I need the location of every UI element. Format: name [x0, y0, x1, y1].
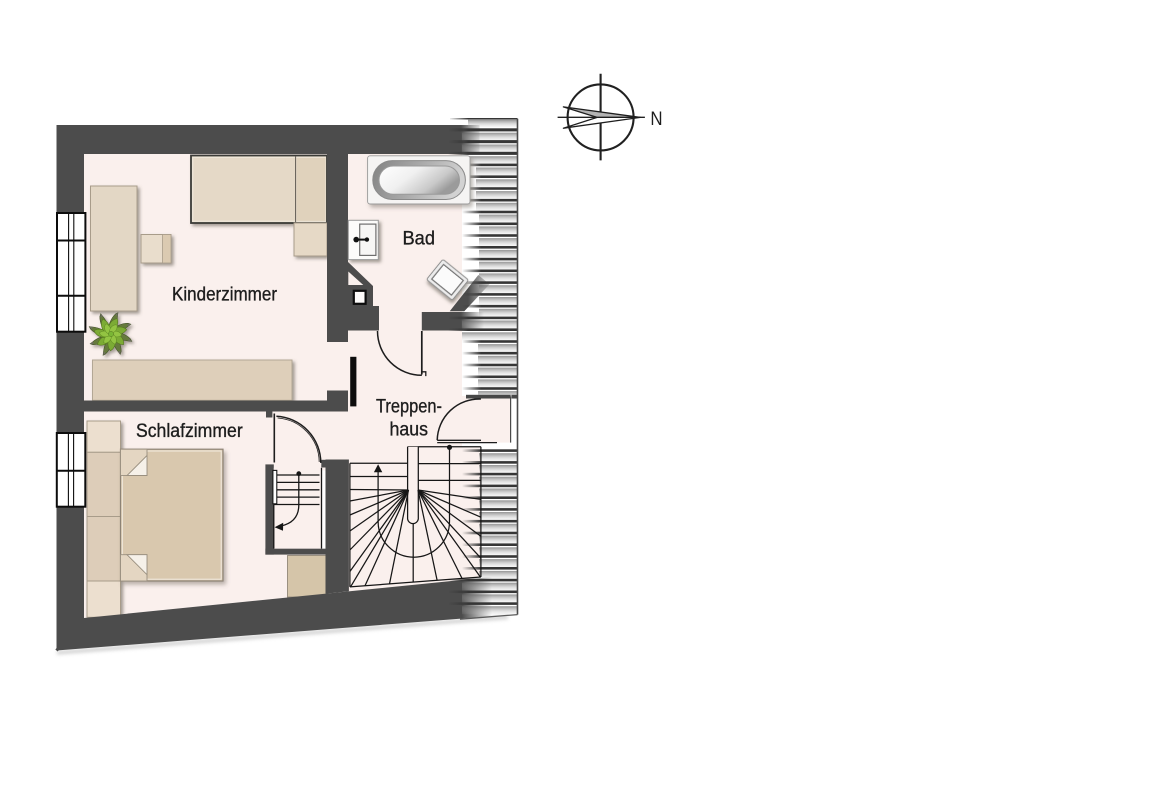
svg-text:Bad: Bad [403, 228, 436, 250]
svg-text:Kinderzimmer: Kinderzimmer [172, 284, 277, 306]
svg-text:Treppen-: Treppen- [376, 396, 442, 418]
svg-text:N: N [650, 109, 662, 130]
svg-text:Schlafzimmer: Schlafzimmer [136, 420, 243, 442]
svg-text:haus: haus [390, 419, 429, 441]
